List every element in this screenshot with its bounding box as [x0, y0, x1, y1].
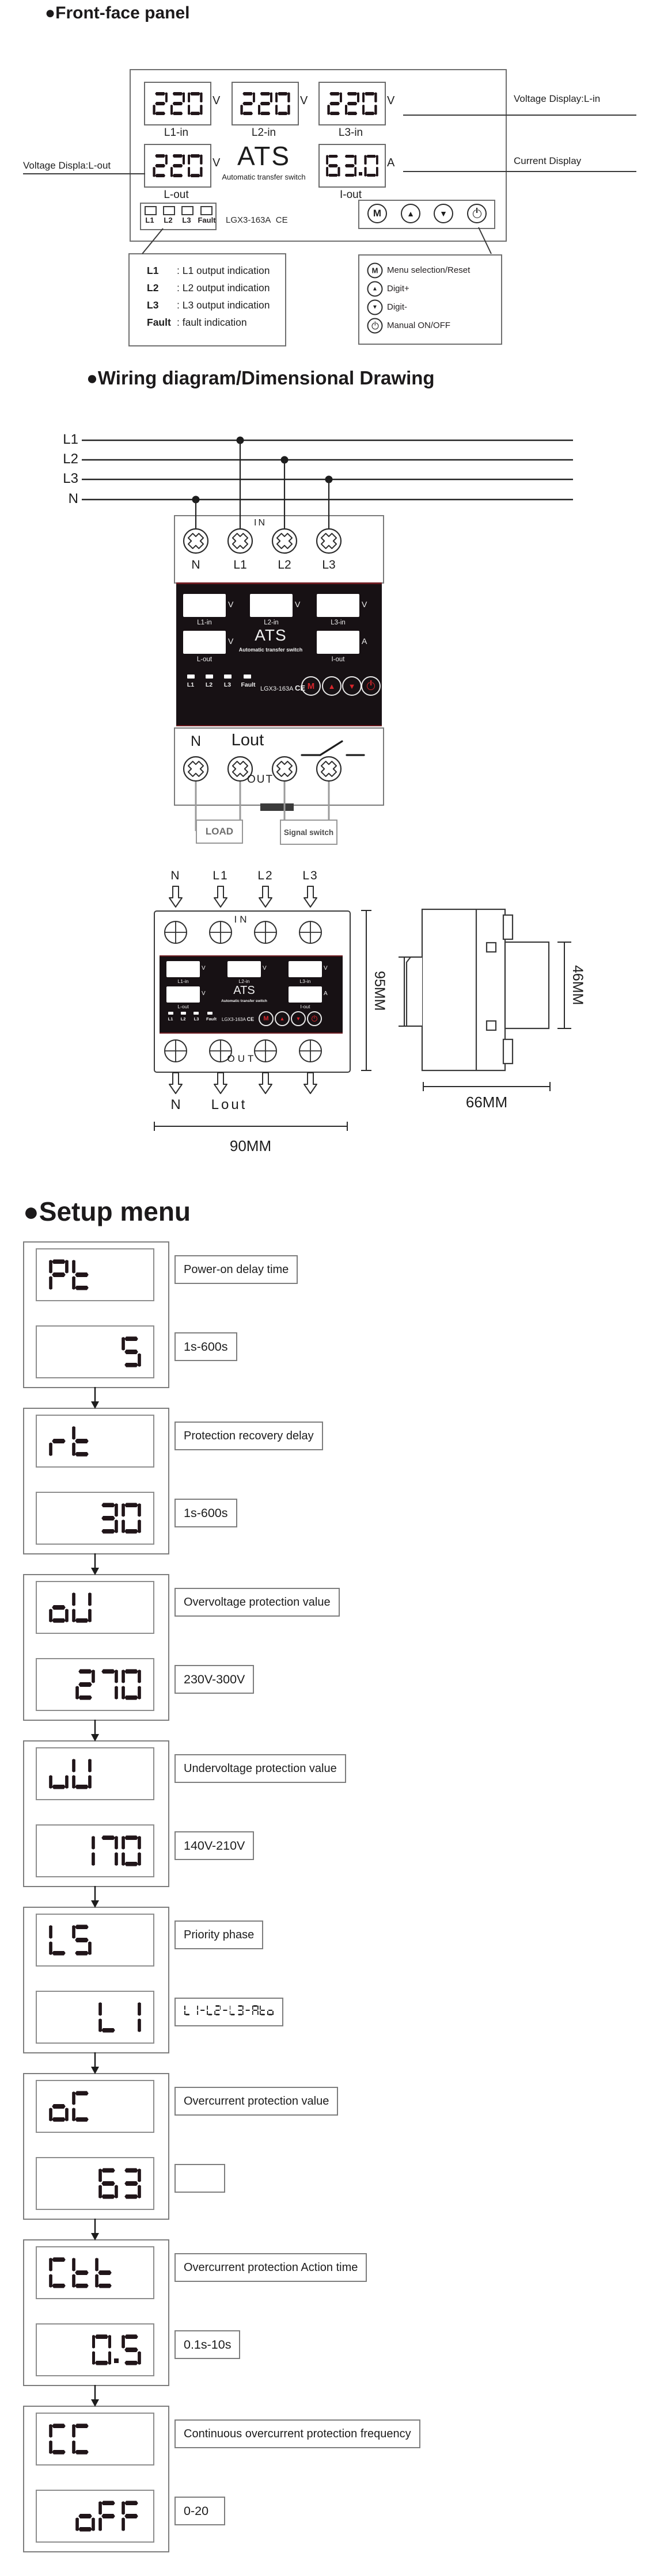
ats-title: ATS — [237, 140, 290, 172]
face-ats-subtitle: Automatic transfer switch — [221, 999, 267, 1003]
legend-row: Fault: fault indication — [147, 317, 247, 329]
face-display-l2-in — [250, 594, 293, 617]
digit-down-button: ▼ — [342, 676, 362, 696]
setup-item-code-display — [36, 1914, 154, 1967]
digit-down-button: ▼ — [434, 204, 453, 223]
annotation-current: Current Display — [514, 155, 581, 167]
dim-front-depth-label: 46MM — [569, 958, 586, 1013]
setup-item-code-display — [36, 2246, 154, 2299]
setup-item-code-display — [36, 1581, 154, 1634]
bus-junction-dots — [192, 437, 333, 504]
flow-arrow-down — [91, 1553, 99, 1575]
out-terminal-label-n: N — [191, 733, 201, 750]
face-caption: L2-in — [264, 619, 279, 626]
annotation-voltage-in: Voltage Display:L-in — [514, 93, 600, 105]
face-unit: V — [295, 600, 300, 609]
in-terminal-label-n: N — [191, 558, 200, 572]
face-caption: L1-in — [178, 978, 189, 984]
face-led-icon — [168, 1012, 173, 1015]
face-caption: I-out — [331, 656, 344, 663]
unit-label: V — [300, 94, 308, 108]
manual-page: ●Front-face panel V L1-in V L2-in V L3-i… — [0, 0, 645, 2576]
setup-item-range-label: 230V-300V — [174, 1665, 254, 1694]
face-unit: V — [263, 965, 267, 971]
face-led-label: Fault — [241, 681, 255, 688]
display-i-out — [318, 144, 386, 188]
dim-in-label: IN — [234, 914, 250, 925]
flow-arrow-icon — [169, 1073, 182, 1093]
led-l3-icon — [181, 206, 193, 215]
face-unit: V — [362, 600, 367, 609]
led-l2-icon — [163, 206, 175, 215]
face-led-label: L1 — [187, 681, 194, 688]
in-terminal-strip — [174, 515, 384, 584]
out-terminal-strip — [174, 727, 384, 806]
face-caption: L3-in — [300, 978, 311, 984]
face-display — [289, 961, 322, 977]
in-label: IN — [254, 518, 267, 528]
legend-row: L3: L3 output indication — [147, 299, 270, 311]
caption-l-out: L-out — [164, 189, 188, 201]
menu-button: M — [367, 204, 387, 223]
face-caption: L-out — [177, 1004, 188, 1009]
digit-up-button: ▲ — [322, 676, 342, 696]
setup-item-value-display — [36, 1991, 154, 2044]
out-label: OUT — [247, 773, 274, 786]
face-unit: V — [202, 990, 206, 997]
digit-down-button: ▼ — [291, 1011, 306, 1026]
dim-top-label-l3: L3 — [302, 869, 318, 883]
digit-up-button: ▲ — [401, 204, 420, 223]
dim-bottom-label-lout: Lout — [211, 1097, 248, 1113]
legend-label: Digit+ — [387, 284, 409, 294]
face-model-label: LGX3-163A CE — [260, 684, 305, 692]
flow-arrow-icon — [304, 886, 317, 907]
bus-label-l1: L1 — [58, 432, 78, 448]
face-led-label: L3 — [224, 681, 231, 688]
bus-label-l2: L2 — [58, 451, 78, 467]
setup-item-name-label: Undervoltage protection value — [174, 1754, 346, 1783]
legend-label: Menu selection/Reset — [387, 265, 470, 275]
bus-label-n: N — [58, 491, 78, 507]
power-button-icon — [367, 318, 383, 334]
up-button-icon: ▲ — [367, 281, 383, 297]
wiring-heading: ●Wiring diagram/Dimensional Drawing — [86, 367, 435, 389]
flow-arrow-down — [91, 2052, 99, 2074]
face-led-icon — [187, 675, 195, 679]
unit-label: V — [213, 157, 220, 170]
unit-label: A — [387, 157, 394, 170]
front-panel-heading: ●Front-face panel — [45, 3, 189, 23]
power-icon — [367, 682, 375, 690]
setup-item-code-display — [36, 1415, 154, 1468]
menu-button: M — [259, 1011, 274, 1026]
setup-item-range-label: 0.1s-10s — [174, 2330, 240, 2359]
display-l-out — [144, 144, 211, 188]
dim-top-label-l2: L2 — [257, 869, 273, 883]
face-unit: A — [324, 990, 328, 997]
led-label-l2: L2 — [164, 216, 172, 224]
setup-item-name-label: Overvoltage protection value — [174, 1588, 340, 1617]
setup-item-range-label — [174, 2164, 225, 2193]
bus-lines — [82, 440, 573, 500]
face-unit: V — [228, 637, 233, 646]
load-box: LOAD — [196, 820, 243, 844]
face-led-icon — [224, 675, 232, 679]
in-terminal-label-l3: L3 — [322, 558, 335, 572]
dim-height-label: 95MM — [371, 959, 388, 1023]
flow-arrow-icon — [169, 886, 182, 907]
face-led-label: L3 — [194, 1016, 199, 1022]
setup-item-value-display — [36, 1658, 154, 1711]
flow-arrow-down — [91, 1886, 99, 1908]
face-ats-title: ATS — [233, 984, 255, 997]
flow-arrow-icon — [214, 1073, 227, 1093]
power-button — [307, 1011, 322, 1026]
setup-item-range-label: 1s-600s — [174, 1332, 237, 1361]
setup-item-name-label: Continuous overcurrent protection freque… — [174, 2419, 420, 2448]
dim-rail-label: 35MM — [410, 973, 425, 1013]
down-button-icon: ▼ — [367, 300, 383, 315]
dim-depth-label: 66MM — [466, 1093, 507, 1111]
ce-mark: CE — [247, 1016, 255, 1022]
led-l1-icon — [145, 206, 157, 215]
face-ats-title: ATS — [255, 626, 286, 645]
face-caption: L1-in — [197, 619, 212, 626]
setup-item-value-display — [36, 2157, 154, 2210]
face-caption: L3-in — [331, 619, 346, 626]
face-unit: V — [202, 965, 206, 971]
face-unit: V — [324, 965, 328, 971]
led-label-l3: L3 — [182, 216, 191, 224]
unit-label: V — [213, 94, 220, 108]
face-caption: L2-in — [239, 978, 250, 984]
signal-switch-box: Signal switch — [280, 820, 337, 845]
setup-item-value-display — [36, 2490, 154, 2543]
legend-row: L2: L2 output indication — [147, 282, 270, 294]
face-display — [166, 961, 200, 977]
legend-row: L1: L1 output indication — [147, 265, 270, 277]
dim-bottom-label-n: N — [170, 1097, 180, 1113]
face-led-label: L1 — [168, 1016, 173, 1022]
face-display — [289, 986, 322, 1003]
dim-top-label-n: N — [170, 869, 180, 883]
setup-item-code-display — [36, 1747, 154, 1800]
face-led-label: L2 — [206, 681, 213, 688]
face-model-label: LGX3-163A CE — [222, 1016, 254, 1022]
led-label-fault: Fault — [198, 216, 215, 224]
power-button — [361, 676, 381, 696]
setup-menu-heading: ●Setup menu — [23, 1196, 191, 1227]
setup-item-code-display — [36, 1248, 154, 1301]
menu-button: M — [301, 676, 321, 696]
power-button — [467, 204, 487, 223]
power-icon — [371, 322, 378, 329]
setup-item-range-label: 0-20 — [174, 2497, 225, 2525]
face-ats-subtitle: Automatic transfer switch — [239, 647, 303, 653]
flow-arrow-icon — [304, 1073, 317, 1093]
digit-up-button: ▲ — [275, 1011, 290, 1026]
model-label: LGX3-163A CE — [226, 215, 288, 225]
display-l1-in — [144, 82, 211, 125]
legend-label: Digit- — [387, 302, 407, 312]
flow-arrow-icon — [259, 886, 272, 907]
caption-l3-in: L3-in — [339, 127, 363, 139]
face-led-icon — [193, 1012, 199, 1015]
face-display — [166, 986, 200, 1003]
setup-item-name-label: Overcurrent protection value — [174, 2087, 338, 2116]
face-unit: A — [362, 637, 367, 646]
flow-arrow-down — [91, 2219, 99, 2240]
face-caption: I-out — [300, 1004, 310, 1009]
led-label-l1: L1 — [145, 216, 154, 224]
setup-item-value-display — [36, 1492, 154, 1545]
setup-item-name-label: Power-on delay time — [174, 1255, 298, 1284]
flow-arrow-down — [91, 2385, 99, 2407]
display-l3-in — [318, 82, 386, 125]
flow-arrow-icon — [259, 1073, 272, 1093]
led-fault-icon — [200, 206, 213, 215]
ats-subtitle: Automatic transfer switch — [222, 173, 305, 181]
dim-out-label: OUT — [227, 1053, 257, 1065]
ce-mark: CE — [276, 215, 288, 225]
face-unit: V — [228, 600, 233, 609]
face-led-label: L2 — [181, 1016, 186, 1022]
dim-width-label: 90MM — [230, 1137, 271, 1155]
setup-item-name-label: Priority phase — [174, 1920, 263, 1949]
in-terminal-label-l1: L1 — [233, 558, 246, 572]
caption-l1-in: L1-in — [164, 127, 188, 139]
setup-item-name-label: Overcurrent protection Action time — [174, 2253, 367, 2282]
face-display — [227, 961, 261, 977]
setup-item-range-label: 140V-210V — [174, 1831, 254, 1860]
face-display-i-out — [317, 631, 359, 654]
in-terminal-label-l2: L2 — [278, 558, 291, 572]
setup-item-value-display — [36, 1824, 154, 1877]
dim-side-view — [407, 909, 549, 1070]
bus-label-l3: L3 — [58, 471, 78, 487]
face-display-l1-in — [183, 594, 226, 617]
power-icon — [312, 1016, 317, 1022]
setup-item-code-display — [36, 2413, 154, 2466]
face-display-l3-in — [317, 594, 359, 617]
setup-item-range-label: 1s-600s — [174, 1499, 237, 1527]
flow-arrow-down — [91, 1387, 99, 1409]
flow-arrow-down — [91, 1720, 99, 1742]
display-l2-in — [232, 82, 299, 125]
setup-item-code-display — [36, 2080, 154, 2133]
legend-label: Manual ON/OFF — [387, 321, 450, 330]
caption-l2-in: L2-in — [252, 127, 276, 139]
setup-item-range-label — [174, 1998, 283, 2026]
setup-item-value-display — [36, 2323, 154, 2376]
face-led-label: Fault — [206, 1016, 217, 1022]
face-led-icon — [207, 1012, 213, 1015]
face-led-icon — [181, 1012, 186, 1015]
face-caption: L-out — [197, 656, 212, 663]
unit-label: V — [387, 94, 394, 108]
setup-item-value-display — [36, 1325, 154, 1378]
setup-item-name-label: Protection recovery delay — [174, 1422, 323, 1450]
annotation-voltage-out: Voltage Displa:L-out — [23, 160, 111, 172]
face-display-l-out — [183, 631, 226, 654]
out-terminal-label-lout: Lout — [232, 731, 264, 750]
dim-top-label-l1: L1 — [213, 869, 228, 883]
menu-button-icon: M — [367, 263, 383, 279]
power-icon — [473, 209, 481, 218]
flow-arrow-icon — [214, 886, 227, 907]
face-led-icon — [244, 675, 251, 679]
face-led-icon — [206, 675, 213, 679]
